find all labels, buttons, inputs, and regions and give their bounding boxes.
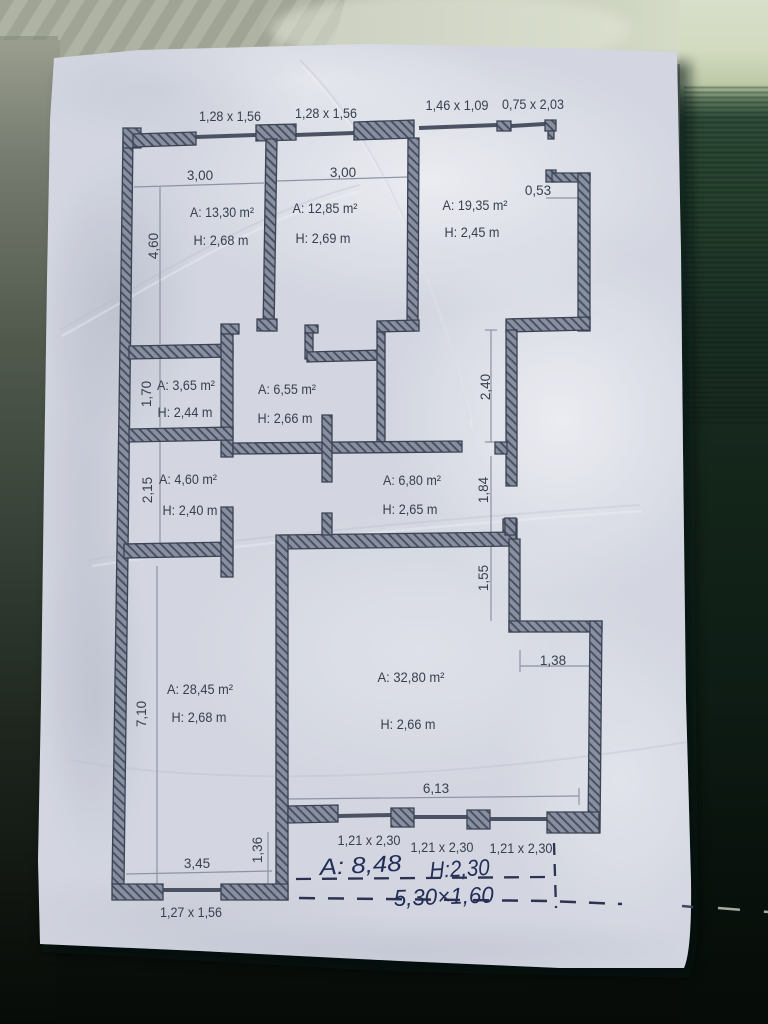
svg-text:H: 2,66 m: H: 2,66 m (258, 411, 313, 426)
svg-text:A: 3,65 m²: A: 3,65 m² (157, 378, 215, 393)
svg-text:1,55: 1,55 (476, 565, 491, 591)
svg-text:5,30×1,60: 5,30×1,60 (393, 882, 494, 911)
svg-text:2,15: 2,15 (140, 477, 155, 503)
svg-text:A: 28,45 m²: A: 28,45 m² (167, 682, 233, 697)
svg-text:A: 8,48: A: 8,48 (317, 850, 403, 880)
svg-text:A: 12,85 m²: A: 12,85 m² (293, 201, 358, 216)
svg-text:H: 2,69 m: H: 2,69 m (296, 231, 351, 246)
svg-text:7,10: 7,10 (134, 701, 149, 727)
svg-text:1,70: 1,70 (139, 381, 154, 407)
svg-text:A: 13,30 m²: A: 13,30 m² (190, 205, 254, 220)
svg-text:3,00: 3,00 (187, 168, 213, 183)
svg-text:1,46 x 1,09: 1,46 x 1,09 (426, 98, 489, 113)
svg-text:A: 19,35 m²: A: 19,35 m² (443, 198, 508, 213)
svg-text:H:2,30: H:2,30 (429, 854, 490, 883)
svg-text:1,84: 1,84 (476, 476, 491, 503)
svg-text:A: 4,60 m²: A: 4,60 m² (159, 472, 217, 487)
svg-text:H: 2,44 m: H: 2,44 m (158, 405, 213, 420)
svg-text:3,00: 3,00 (330, 165, 356, 180)
svg-text:A: 6,55 m²: A: 6,55 m² (258, 382, 316, 397)
svg-text:1,21 x 2,30: 1,21 x 2,30 (490, 841, 553, 856)
svg-text:1,21 x 2,30: 1,21 x 2,30 (338, 833, 401, 848)
svg-text:H: 2,68 m: H: 2,68 m (194, 233, 249, 248)
svg-text:6,13: 6,13 (423, 781, 449, 796)
svg-text:1,27 x 1,56: 1,27 x 1,56 (160, 905, 222, 920)
svg-text:1,21 x 2,30: 1,21 x 2,30 (411, 840, 474, 855)
svg-text:1,38: 1,38 (540, 653, 566, 668)
svg-text:0,75 x 2,03: 0,75 x 2,03 (502, 97, 564, 112)
svg-text:H: 2,45 m: H: 2,45 m (445, 225, 500, 240)
svg-text:H: 2,65 m: H: 2,65 m (383, 502, 438, 517)
svg-text:1,28 x 1,56: 1,28 x 1,56 (295, 106, 357, 121)
svg-text:A: 32,80 m²: A: 32,80 m² (378, 670, 445, 685)
svg-text:H: 2,66 m: H: 2,66 m (381, 717, 436, 732)
svg-text:2,40: 2,40 (478, 374, 493, 400)
svg-text:0,53: 0,53 (525, 183, 551, 198)
svg-text:4,60: 4,60 (146, 233, 161, 259)
svg-text:H: 2,68 m: H: 2,68 m (172, 710, 227, 725)
svg-text:H: 2,40 m: H: 2,40 m (163, 503, 218, 518)
svg-text:A: 6,80 m²: A: 6,80 m² (383, 473, 441, 488)
svg-text:1,28 x 1,56: 1,28 x 1,56 (199, 109, 261, 124)
svg-text:3,45: 3,45 (184, 856, 210, 871)
svg-text:1,36: 1,36 (250, 837, 265, 863)
